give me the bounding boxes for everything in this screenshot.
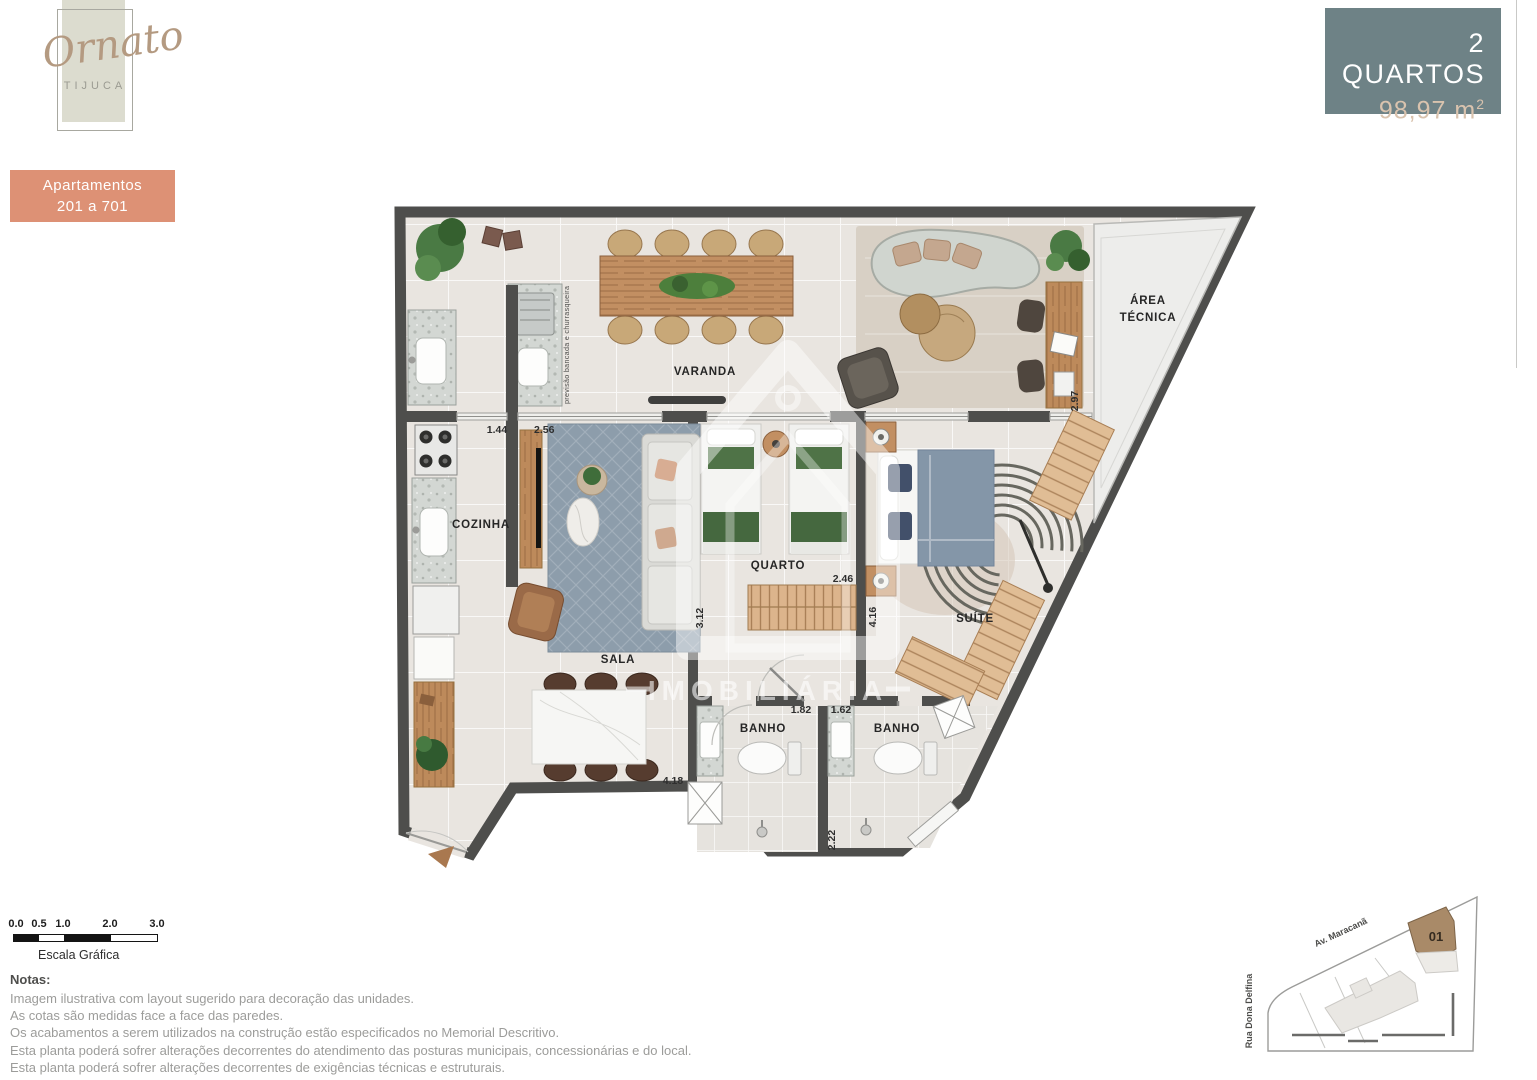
watermark-text: IMOBILIÁRIA: [648, 675, 888, 706]
label-varanda: VARANDA: [674, 366, 736, 378]
stove-icon: [415, 425, 457, 475]
notes-title: Notas:: [10, 972, 770, 987]
logo-ornato: Ornato TIJUCA: [20, 0, 200, 150]
label-sala: SALA: [601, 654, 636, 666]
notes-line: Os acabamentos a serem utilizados na con…: [10, 1024, 770, 1041]
unit-bedrooms: 2 QUARTOS: [1325, 28, 1485, 90]
area-tecnica: [1094, 217, 1241, 523]
dim-sala-length: 4.18: [663, 775, 684, 787]
label-suite: SUÍTE: [956, 612, 994, 625]
scale-tick-3: 2.0: [102, 918, 117, 930]
scale-bar-graphic: [13, 934, 158, 942]
apartments-badge-line1: Apartamentos: [43, 175, 142, 196]
site-street-top: Av. Maracanã: [1313, 915, 1370, 949]
floor-plan: IMOBILIÁRIA VARANDA COZINHA SALA QUARTO …: [370, 190, 1280, 890]
sideboard: [414, 682, 454, 787]
sala-oval-table: [567, 498, 599, 546]
unit-area: 98,97 m2: [1325, 96, 1485, 125]
terrace-sink-counter: [408, 310, 456, 405]
banho2-toilet-icon: [874, 742, 937, 775]
logo-city: TIJUCA: [30, 80, 160, 92]
dim-quarto-depth: 3.12: [694, 608, 706, 629]
apartments-badge: Apartamentos 201 a 701: [10, 170, 175, 222]
scale-tick-0: 0.0: [8, 918, 23, 930]
kitchen-sink-counter: [412, 478, 456, 583]
label-area-tecnica-2: TÉCNICA: [1120, 311, 1177, 324]
notes-line: Imagem ilustrativa com layout sugerido p…: [10, 990, 770, 1007]
dim-sala-width: 2.56: [534, 424, 555, 436]
label-banho2: BANHO: [874, 723, 920, 735]
notes-line: As cotas são medidas face a face das par…: [10, 1007, 770, 1024]
scale-bar: 0.0 0.5 1.0 2.0 3.0 Escala Gráfica: [10, 918, 190, 968]
kitchen-cabinet: [414, 637, 454, 679]
notes-line: Esta planta poderá sofrer alterações dec…: [10, 1042, 770, 1059]
sala-side-table: [577, 465, 607, 495]
terrace-bench: [648, 396, 726, 404]
fridge-icon: [413, 586, 459, 634]
dim-terrace-depth: 2.97: [1069, 391, 1081, 412]
quarto-wardrobe: [748, 585, 856, 630]
scale-tick-4: 3.0: [149, 918, 164, 930]
label-banho1: BANHO: [740, 723, 786, 735]
dim-suite-depth: 4.16: [867, 607, 879, 628]
unit-area-exponent: 2: [1476, 96, 1485, 112]
label-bancada-note: previsão bancada e churrasqueira: [562, 286, 571, 404]
scale-tick-2: 1.0: [55, 918, 70, 930]
unit-type-badge: 2 QUARTOS 98,97 m2: [1325, 8, 1501, 114]
dim-banho2-width: 1.62: [831, 704, 852, 716]
site-unit-number: 01: [1429, 929, 1443, 944]
label-cozinha: COZINHA: [452, 519, 510, 531]
banho2-sink-counter: [828, 706, 854, 776]
kitchen: [412, 425, 459, 787]
scale-bar-caption: Escala Gráfica: [38, 948, 119, 962]
banho1-toilet-icon: [738, 742, 801, 775]
label-quarto: QUARTO: [751, 560, 805, 572]
dim-banho2-depth: 2.22: [826, 830, 838, 851]
dim-cozinha: 1.44: [487, 424, 508, 436]
site-street-left: Rua Dona Delfina: [1244, 973, 1254, 1049]
dim-quarto-width: 2.46: [833, 573, 854, 585]
banho1-sink-counter: [697, 706, 723, 776]
scale-tick-1: 0.5: [31, 918, 46, 930]
site-plan: 01 Av. Maracanã Rua Dona Delfina: [1230, 893, 1490, 1080]
notes-line: Esta planta poderá sofrer alterações dec…: [10, 1059, 770, 1076]
notes-block: Notas: Imagem ilustrativa com layout sug…: [10, 972, 770, 1076]
dim-banho1-width: 1.82: [791, 704, 812, 716]
label-area-tecnica-1: ÁREA: [1130, 294, 1166, 307]
right-edge-rule: [1516, 0, 1517, 368]
unit-area-value: 98,97 m: [1379, 96, 1476, 124]
banho1-shower-box: [688, 782, 722, 824]
brochure-canvas: Ornato TIJUCA Apartamentos 201 a 701 2 Q…: [0, 0, 1537, 1080]
tv-console: [520, 430, 542, 568]
apartments-badge-line2: 201 a 701: [57, 196, 128, 217]
